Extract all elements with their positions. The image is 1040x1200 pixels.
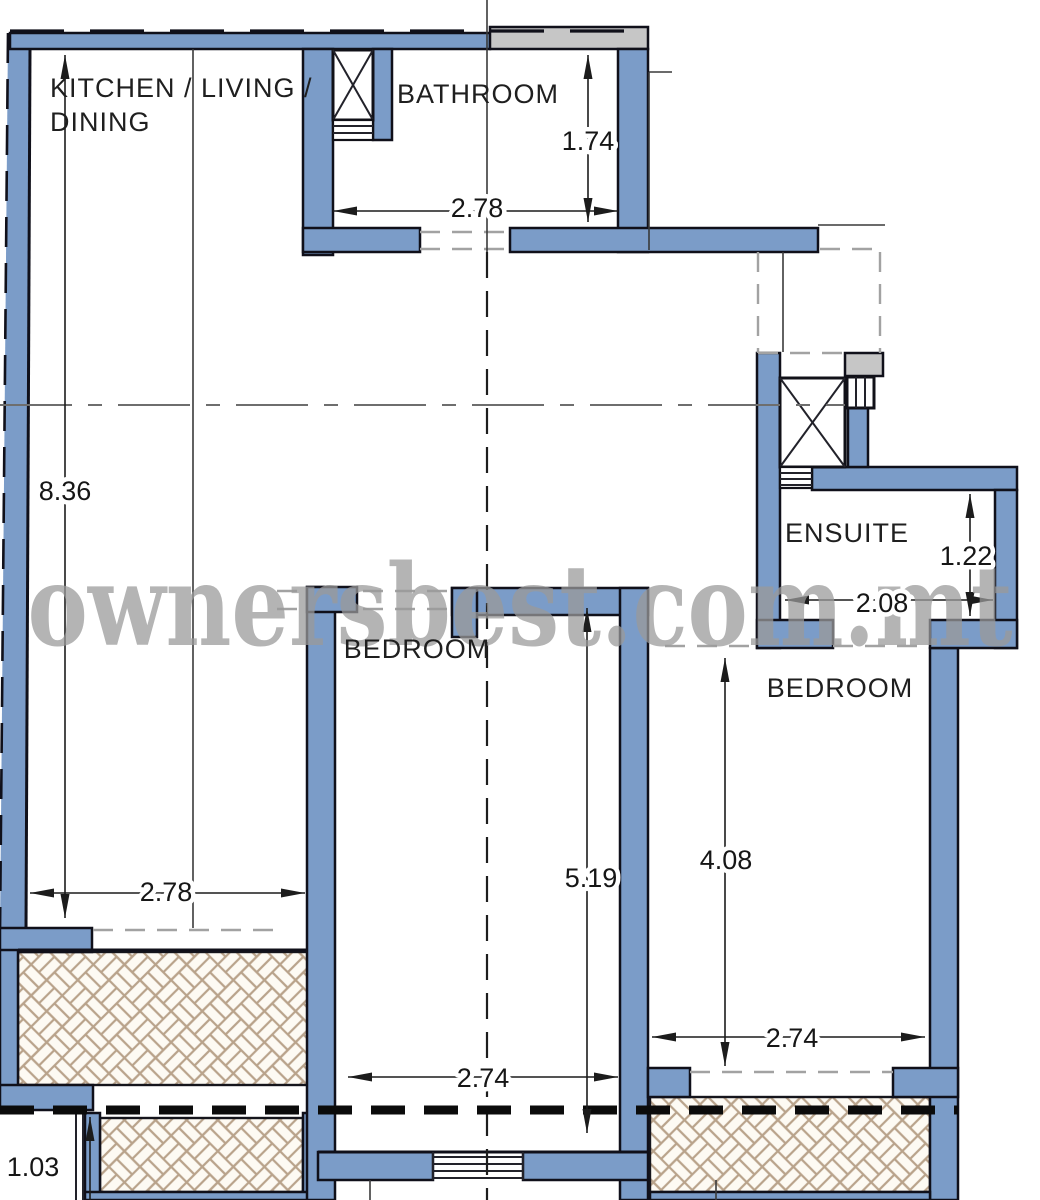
terrace-lower-left-hatch (100, 1118, 303, 1192)
dim-terrace-depth: 1.03 (7, 1152, 60, 1182)
dim-bedroom-middle-height: 5.19 (565, 863, 618, 893)
floorplan-page: ownersbest.com.mt KITCHEN / LIVING / DIN… (0, 0, 1040, 1200)
dim-bathroom-width: 2.78 (451, 193, 504, 223)
kitchen-bottom-wall (0, 928, 92, 952)
dim-ensuite-height: 1.22 (940, 541, 993, 571)
bathroom-bottom-wall-left (303, 228, 420, 252)
top-wall (10, 33, 490, 49)
dim-bedroom-middle-width: 2.74 (457, 1063, 510, 1093)
lower-terrace-bottom-border (85, 1192, 318, 1200)
dim-ensuite-width: 2.08 (856, 588, 909, 618)
bedroom-right-bottom-wall-right (893, 1068, 958, 1097)
room-label-ensuite: ENSUITE (785, 518, 909, 548)
floorplan-canvas: ownersbest.com.mt KITCHEN / LIVING / DIN… (0, 0, 1040, 1200)
dim-bedroom-right-width: 2.74 (766, 1023, 819, 1053)
ensuite-window-sill-gray (845, 353, 883, 376)
dim-bedroom-right-height: 4.08 (700, 845, 753, 875)
dim-kitchen-height: 8.36 (39, 476, 92, 506)
bathroom-shaft-side-wall (373, 49, 392, 140)
room-label-bedroom-right: BEDROOM (767, 673, 914, 703)
ensuite-top-wall (812, 467, 1017, 490)
bathroom-bottom-wall-right (510, 228, 818, 252)
dim-bathroom-height: 1.74 (562, 126, 615, 156)
bedroom-right-bottom-wall-left (648, 1068, 690, 1097)
bedroom-middle-bottom-wall-right (523, 1152, 648, 1180)
dim-kitchen-width: 2.78 (140, 877, 193, 907)
lower-terrace-left-border (85, 1113, 100, 1200)
right-exterior-wall (930, 648, 958, 1200)
room-label-bathroom: BATHROOM (397, 79, 559, 109)
bathroom-right-wall (618, 49, 648, 252)
ensuite-window-stub (848, 408, 868, 467)
room-label-bedroom-middle: BEDROOM (344, 634, 491, 664)
bedroom-middle-bottom-wall-left (318, 1152, 433, 1180)
room-label-kitchen-line2: DINING (50, 107, 151, 137)
terrace-kitchen-hatch (18, 952, 308, 1085)
terrace-left-border (0, 950, 18, 1087)
bathroom-shaft (333, 50, 373, 140)
room-label-kitchen-line1: KITCHEN / LIVING / (50, 73, 313, 103)
terrace-right-bottom-border (650, 1192, 930, 1200)
ensuite-window (847, 377, 874, 408)
